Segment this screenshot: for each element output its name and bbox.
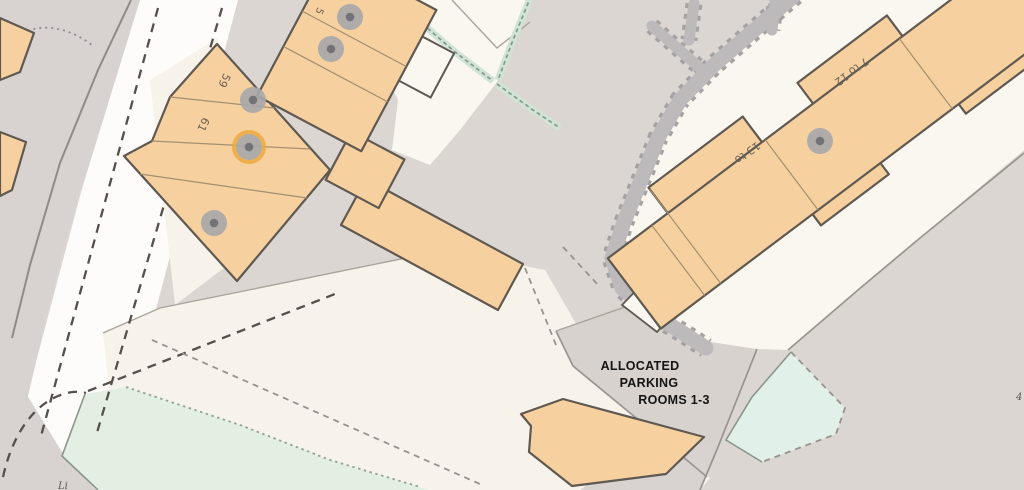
map-canvas[interactable]: 59 61 5 13 to 7 to 12 ALLOCATED PARKING … (0, 0, 1024, 490)
parking-annotation-line3: ROOMS 1-3 (638, 393, 709, 407)
marker-dot (327, 45, 336, 54)
map-marker[interactable] (337, 4, 363, 30)
map-marker[interactable] (240, 87, 266, 113)
marker-dot (210, 219, 219, 228)
parking-annotation-line1: ALLOCATED (601, 359, 680, 373)
partial-label-bottom-left: Li (57, 481, 68, 490)
partial-label-right-edge: 4 (1015, 392, 1022, 403)
map-marker[interactable] (807, 128, 833, 154)
marker-dot (816, 137, 825, 146)
map-marker[interactable] (201, 210, 227, 236)
marker-dot (346, 13, 355, 22)
map-marker[interactable] (318, 36, 344, 62)
marker-dot (249, 96, 258, 105)
parking-annotation-line2: PARKING (620, 376, 679, 390)
marker-dot (245, 143, 254, 152)
map-marker-highlighted[interactable] (234, 132, 264, 162)
